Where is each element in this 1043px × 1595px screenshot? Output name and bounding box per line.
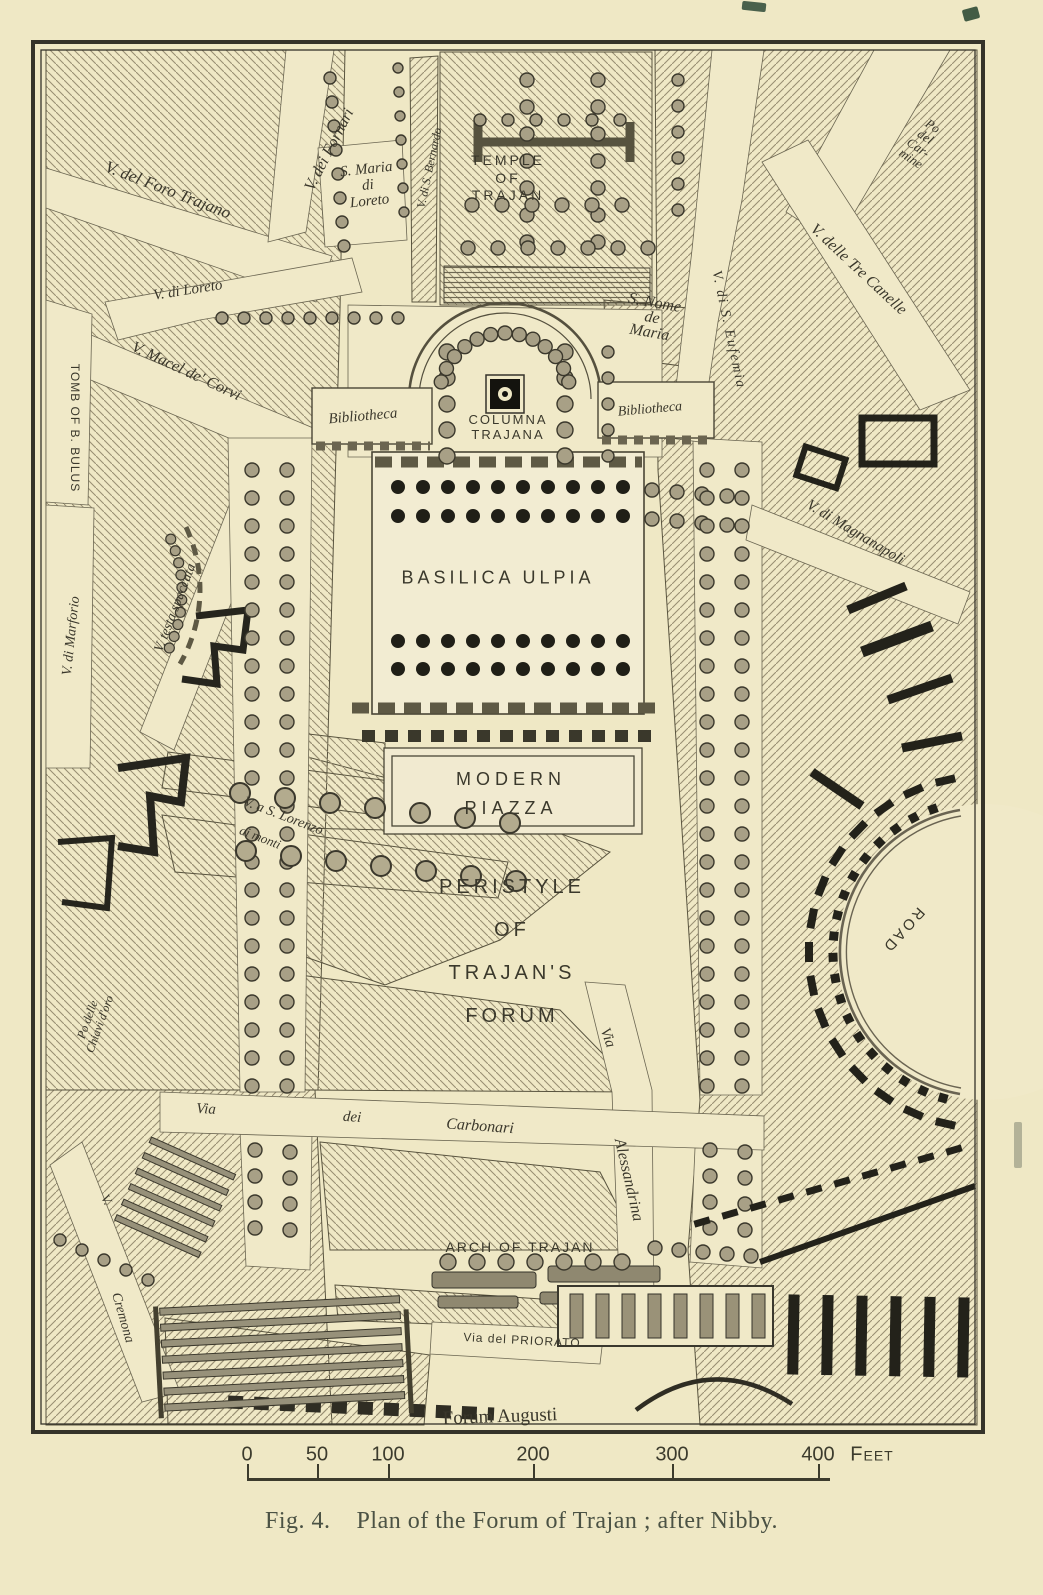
figure-number: Fig. 4. <box>265 1508 331 1534</box>
map-engraving <box>0 0 1043 1595</box>
ladder-priorato-east <box>558 1286 773 1346</box>
bibliotheca-east-block <box>598 382 714 438</box>
figure-caption: Plan of the Forum of Trajan ; after Nibb… <box>357 1508 778 1534</box>
print-artifact <box>1014 1122 1022 1168</box>
bibliotheca-west-block <box>312 388 432 444</box>
figure-caption-row: Fig. 4.Plan of the Forum of Trajan ; aft… <box>0 1508 1043 1535</box>
arch-of-trajan-ruins <box>432 1272 536 1288</box>
map-plate: V. del Foro TrajanoV. dei FornariS. Mari… <box>0 0 1043 1595</box>
